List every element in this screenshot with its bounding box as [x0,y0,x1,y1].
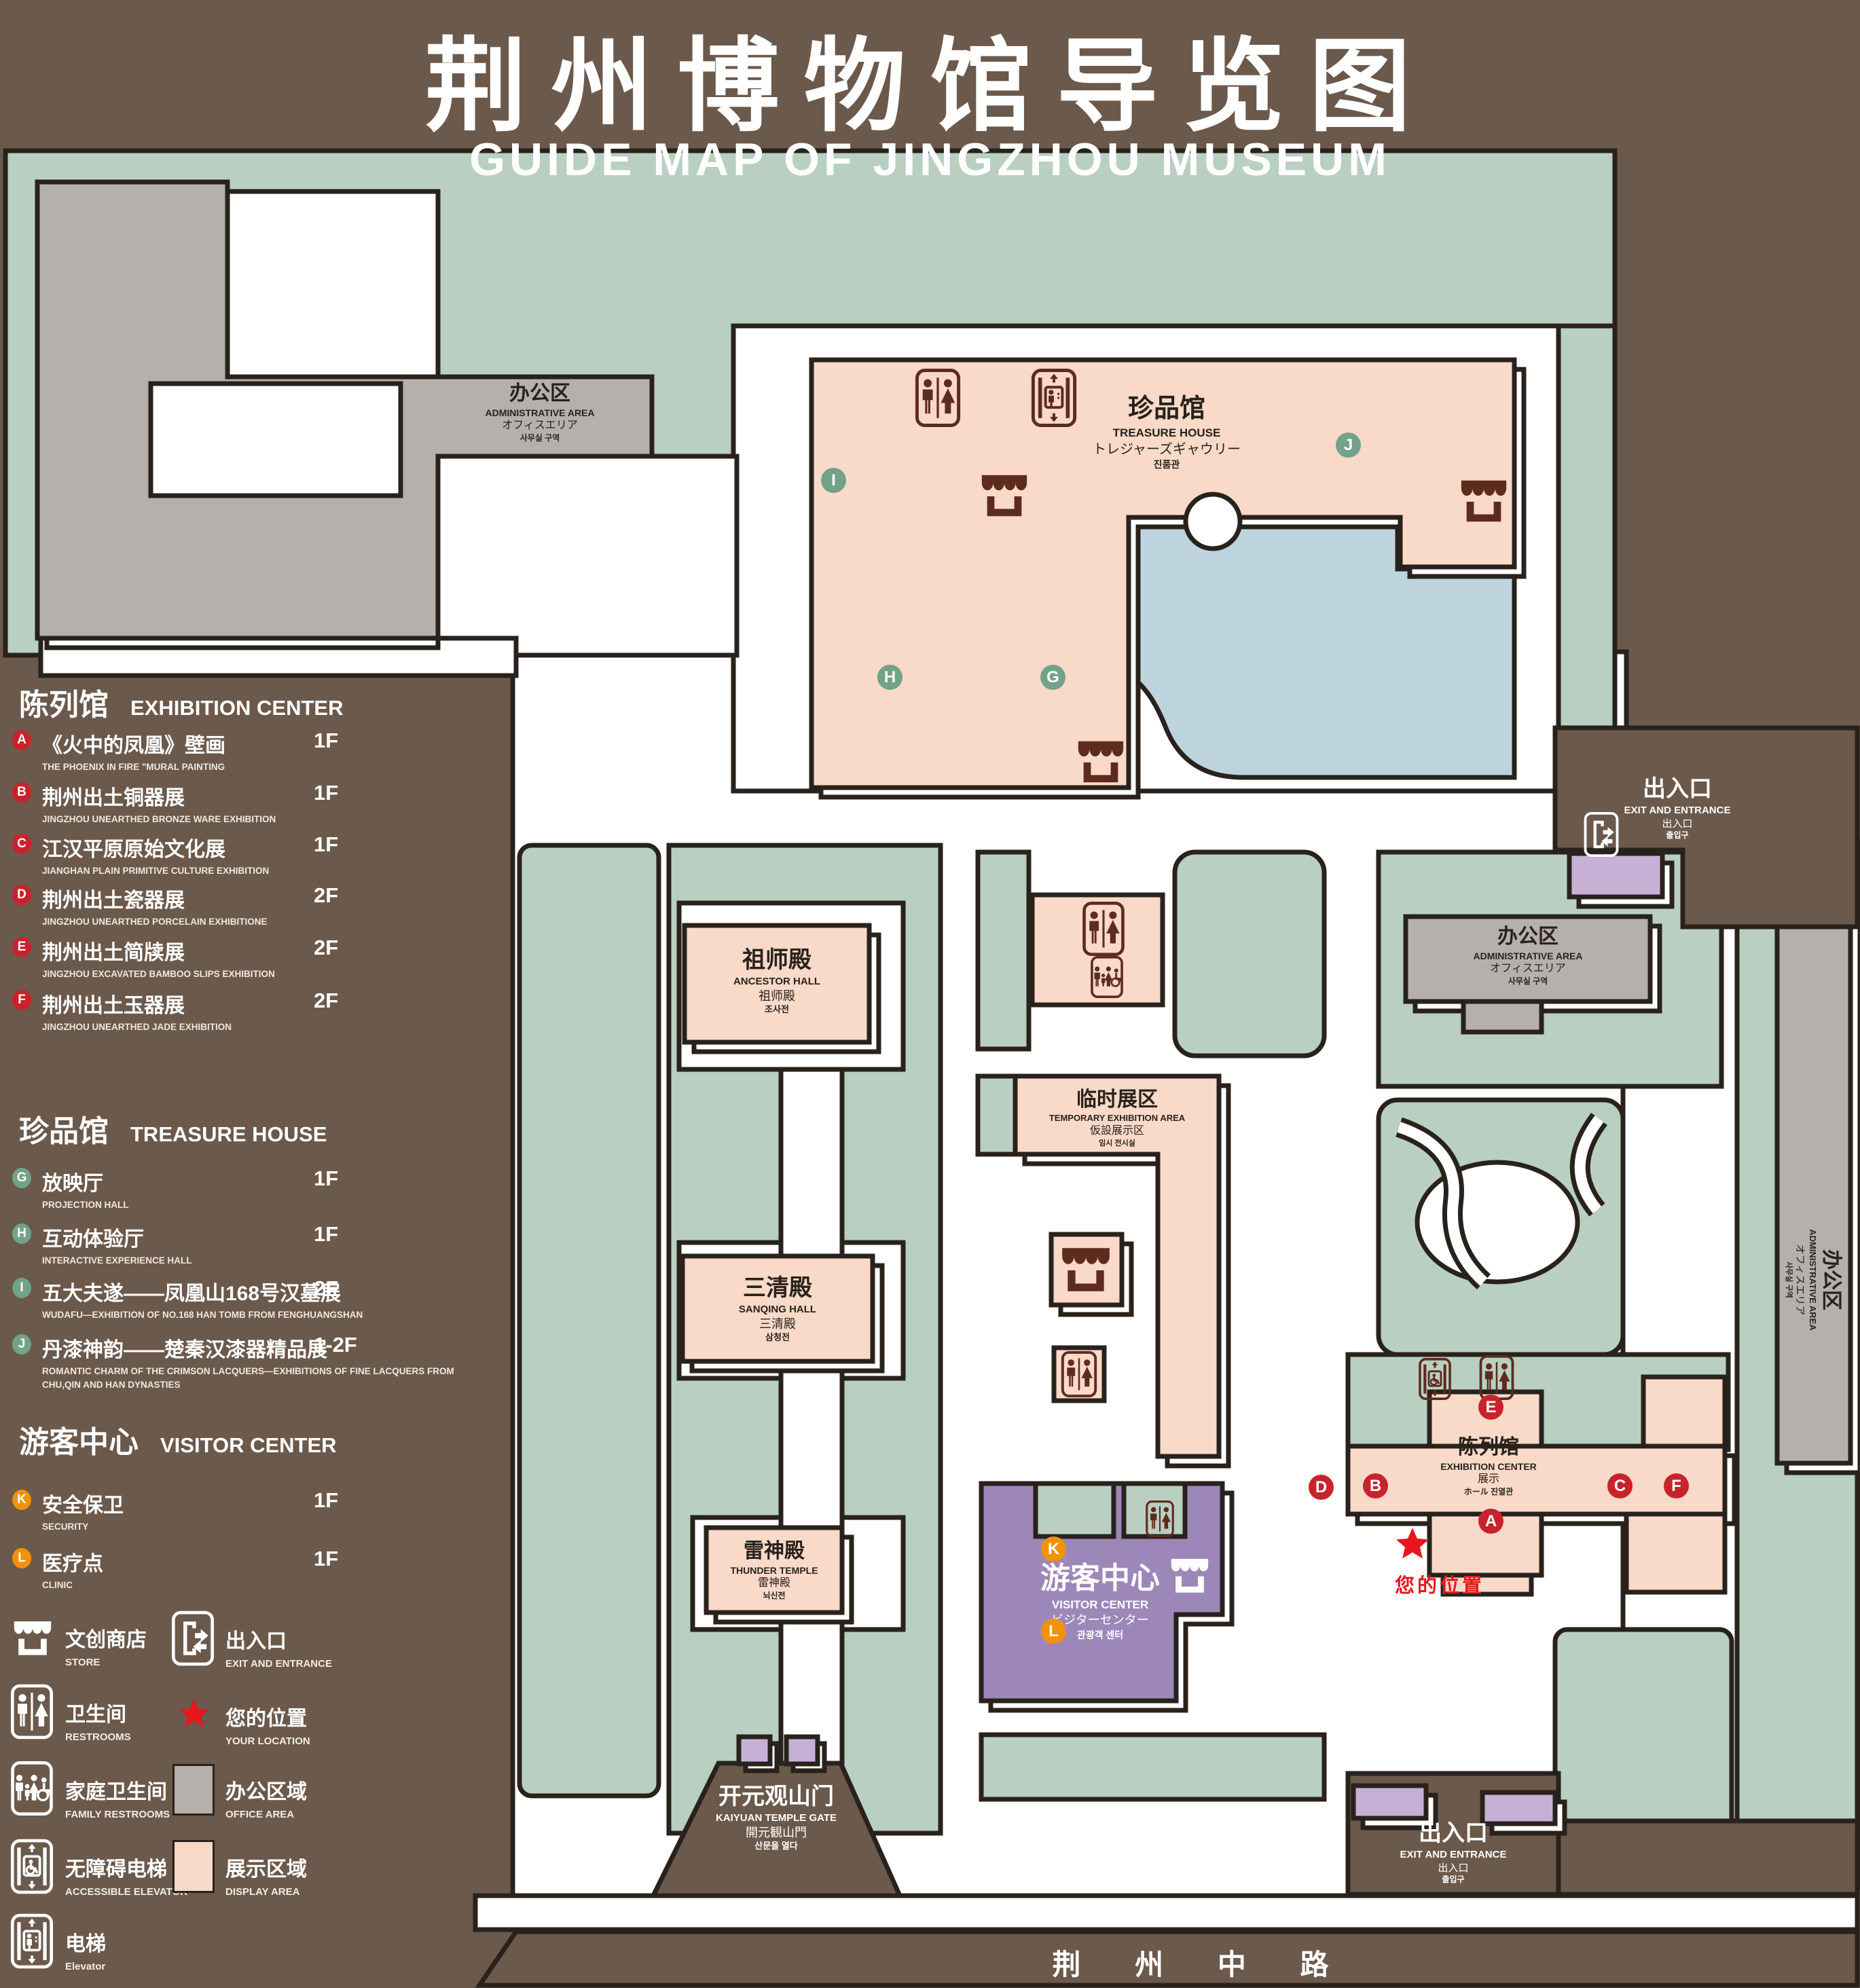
admin-ko: 사무실 구역 [1783,1229,1793,1331]
lawn-central-a [978,852,1029,1049]
exit-en: EXIT AND ENTRANCE [1624,804,1731,817]
section-title-en: EXHIBITION CENTER [130,696,343,720]
legend-item-E: E 荆州出土简牍展 2F JINGZHOU EXCAVATED BAMBOO S… [12,936,481,981]
road-name-label: 荆 州 中 路 [1052,1942,1351,1983]
item-zh: 荆州出土瓷器展 [42,883,481,913]
store-icon [11,1615,54,1661]
symbol-en: STORE [65,1657,147,1668]
garden-pond [1417,1162,1578,1282]
accessible-elevator-icon [1415,1358,1455,1400]
sanqing-hall-label: 三清殿 SANQING HALL 三清殿 삼청전 [739,1273,816,1344]
restrooms-icon [1057,1351,1101,1397]
map-marker-K: K [1041,1536,1066,1562]
symbol-zh: 展示区域 [225,1852,307,1882]
store-icon [1058,1241,1114,1297]
admin-topleft-label: 办公区 ADMINISTRATIVE AREA オフィスエリア 사무실 구역 [486,380,595,444]
item-floor: 1F [314,729,338,753]
guide-map-poster: { "title": {"zh": "荆州博物馆导览图", "en": "GUI… [0,0,1860,1988]
treasure-zh: 珍品馆 [1093,392,1241,426]
thunder-en: THUNDER TEMPLE [730,1564,818,1577]
legend-item-F: F 荆州出土玉器展 2F JINGZHOU UNEARTHED JADE EXH… [12,989,481,1034]
gate-platform-a [739,1737,770,1764]
legend-item-I: I 五大夫遂——凤凰山168号汉墓展 2F WUDAFU—EXHIBITION … [12,1276,481,1322]
symbol-zh: 电梯 [65,1927,106,1957]
exit-ne-label: 出入口 EXIT AND ENTRANCE 出入口 출입구 [1624,774,1731,841]
restrooms-icon [910,369,966,427]
symbol-en: OFFICE AREA [225,1809,307,1820]
legend-badge-F: F [12,990,31,1010]
exit-zh: 出入口 [1400,1818,1507,1848]
exit-ja: 出入口 [1400,1862,1507,1875]
symbol-zh: 您的位置 [225,1701,310,1731]
legend-badge-I: I [12,1278,31,1298]
sanqing-ja: 三清殿 [739,1317,816,1332]
item-zh: 《火中的凤凰》壁画 [42,729,481,758]
legend-badge-A: A [12,730,31,750]
exhibition-center-label: 陈列馆 EXHIBITION CENTER 展示 ホール 진열관 [1440,1434,1537,1498]
gate-zh: 开元观山门 [716,1782,837,1811]
admin-building-east-strip [1777,849,1850,1463]
sanqing-en: SANQING HALL [739,1303,816,1317]
legend-badge-H: H [12,1223,31,1244]
item-zh: 医疗点 [42,1547,481,1577]
item-floor: 1F [314,832,338,857]
map-marker-F: F [1664,1473,1689,1498]
family-restroom-icon [1085,956,1129,998]
ancestor-hall-label: 祖师殿 ANCESTOR HALL 祖师殿 조사전 [733,945,820,1016]
item-floor: 1F [314,781,338,805]
restrooms-icon [1142,1501,1178,1537]
symbol-zh: 无障碍电梯 [65,1852,187,1882]
admin-strip-label: 办公区 ADMINISTRATIVE AREA オフィスエリア 사무실 구역 [1783,1229,1844,1331]
admin-ko: 사무실 구역 [1474,976,1583,987]
temporary-en: TEMPORARY EXHIBITION AREA [1049,1113,1185,1124]
symbol-zh: 家庭卫生间 [65,1775,170,1805]
treasure-ja: トレジャーズギャウリー [1093,441,1241,458]
map-marker-E: E [1478,1395,1503,1420]
thunder-zh: 雷神殿 [730,1538,818,1564]
item-floor: 1F [314,1547,338,1571]
map-marker-I: I [821,468,846,493]
treasure-house-label: 珍品馆 TREASURE HOUSE トレジャーズギャウリー 진품관 [1093,392,1241,471]
symbol-zh: 出入口 [225,1624,332,1654]
temporary-exhibition-label: 临时展区 TEMPORARY EXHIBITION AREA 仮設展示区 임시 … [1049,1086,1185,1148]
exit-ja: 出入口 [1624,817,1731,831]
sidewalk [475,1896,1857,1930]
item-en: JINGZHOU UNEARTHED PORCELAIN EXHIBITIONE [42,915,463,929]
item-floor: 2F [314,1276,338,1301]
symbol-en: YOUR LOCATION [225,1735,310,1747]
item-en: JINGZHOU UNEARTHED BRONZE WARE EXHIBITIO… [42,813,463,826]
legend-badge-B: B [12,782,31,803]
store-icon [978,468,1031,521]
treasure-en: TREASURE HOUSE [1093,426,1241,441]
symbol-zh: 办公区域 [225,1775,307,1805]
exit-entrance-icon [172,1610,214,1666]
item-floor: 1F [314,1166,338,1191]
thunder-temple-label: 雷神殿 THUNDER TEMPLE 雷神殿 뇌신전 [730,1538,818,1602]
admin-en: ADMINISTRATIVE AREA [1806,1229,1818,1331]
admin-east-label: 办公区 ADMINISTRATIVE AREA オフィスエリア 사무실 구역 [1474,923,1583,987]
exit-en: EXIT AND ENTRANCE [1400,1848,1507,1862]
exhibition-en: EXHIBITION CENTER [1440,1460,1537,1473]
map-marker-G: G [1040,665,1065,690]
item-zh: 荆州出土铜器展 [42,781,481,811]
symbol-en: ACCESSIBLE ELEVATOR [65,1886,187,1898]
your-location-star-icon [1396,1528,1429,1559]
temporary-zh: 临时展区 [1049,1086,1185,1113]
visitor-zh: 游客中心 [1040,1559,1160,1598]
item-en: INTERACTIVE EXPERIENCE HALL [42,1254,463,1268]
gate-ko: 산문을 열다 [716,1841,837,1852]
exit-zh: 出入口 [1624,774,1731,804]
admin-zh: 办公区 [1818,1229,1844,1331]
legend-symbol-store: 文创商店 STORE [65,1623,147,1668]
thunder-ja: 雷神殿 [730,1577,818,1591]
exit-ko: 출입구 [1400,1875,1507,1885]
item-en: PROJECTION HALL [42,1198,463,1212]
display-area-swatch [172,1840,215,1893]
ancestor-zh: 祖师殿 [733,945,820,975]
item-zh: 荆州出土玉器展 [42,989,481,1018]
legend-item-H: H 互动体验厅 1F INTERACTIVE EXPERIENCE HALL [12,1222,481,1268]
map-marker-L: L [1041,1619,1066,1644]
symbol-en: EXIT AND ENTRANCE [225,1658,332,1670]
admin-ko: 사무실 구역 [486,433,595,444]
legend-symbol-display-area: 展示区域 DISPLAY AREA [225,1852,307,1898]
gate-ja: 開元観山門 [716,1825,837,1841]
legend-item-C: C 江汉平原原始文化展 1F JIANGHAN PLAIN PRIMITIVE … [12,832,481,878]
item-floor: 1-2F [314,1333,357,1357]
legend-symbol-exit: 出入口 EXIT AND ENTRANCE [225,1624,332,1670]
section-title-zh: 陈列馆 [19,680,109,724]
legend-section-exhibition-center: 陈列馆 EXHIBITION CENTER [19,680,343,724]
admin-ja: オフィスエリア [486,419,595,433]
ancestor-ko: 조사전 [733,1004,820,1016]
exit-south-label: 出入口 EXIT AND ENTRANCE 出入口 출입구 [1400,1818,1507,1885]
item-floor: 1F [314,1222,338,1247]
elevator-icon [1027,369,1081,427]
exit-platform-ne [1569,853,1662,897]
item-floor: 1F [314,1488,338,1513]
legend-item-A: A 《火中的凤凰》壁画 1F THE PHOENIX IN FIRE "MURA… [12,729,481,774]
map-marker-J: J [1336,432,1361,458]
item-en: JIANGHAN PLAIN PRIMITIVE CULTURE EXHIBIT… [42,864,463,878]
item-floor: 2F [314,936,338,960]
exhibition-ko: ホール 진열관 [1440,1487,1537,1498]
legend-item-D: D 荆州出土瓷器展 2F JINGZHOU UNEARTHED PORCELAI… [12,883,481,929]
legend-symbol-family-restrooms: 家庭卫生间 FAMILY RESTROOMS [65,1775,170,1820]
section-title-zh: 珍品馆 [19,1107,109,1150]
kaiyuan-gate-label: 开元观山门 KAIYUAN TEMPLE GATE 開元観山門 산문을 열다 [716,1782,837,1852]
item-floor: 2F [314,883,338,908]
legend-item-J: J 丹漆神韵——楚秦汉漆器精品展 1-2F ROMANTIC CHARM OF … [12,1333,481,1393]
legend-badge-K: K [12,1490,31,1510]
legend-item-K: K 安全保卫 1F SECURITY [12,1488,481,1534]
map-marker-A: A [1478,1509,1503,1534]
family-restrooms-icon [11,1761,53,1816]
item-en: THE PHOENIX IN FIRE "MURAL PAINTING [42,760,463,774]
legend-badge-D: D [12,885,31,905]
lawn-visitor-notch-a [1036,1484,1114,1536]
item-zh: 五大夫遂——凤凰山168号汉墓展 [42,1276,481,1306]
legend-symbol-office-area: 办公区域 OFFICE AREA [225,1775,307,1820]
item-en: WUDAFU—EXHIBITION OF NO.168 HAN TOMB FRO… [42,1308,463,1322]
map-marker-B: B [1363,1473,1388,1498]
admin-zh: 办公区 [486,380,595,407]
path-temple-axis [781,1069,842,1833]
legend-badge-L: L [12,1548,31,1568]
symbol-en: RESTROOMS [65,1731,131,1743]
item-zh: 安全保卫 [42,1488,481,1518]
map-marker-H: H [877,665,902,690]
admin-en: ADMINISTRATIVE AREA [1474,950,1583,962]
temporary-ja: 仮設展示区 [1049,1124,1185,1139]
legend-badge-C: C [12,834,31,854]
legend-symbol-elevator: 电梯 Elevator [65,1927,106,1972]
section-title-zh: 游客中心 [19,1418,139,1461]
item-zh: 江汉平原原始文化展 [42,832,481,862]
exhibition-center-ne [1643,1377,1725,1446]
your-location-star-icon [179,1699,209,1727]
legend-symbol-accessible-elevator: 无障碍电梯 ACCESSIBLE ELEVATOR [65,1852,187,1898]
legend-item-L: L 医疗点 1F CLINIC [12,1547,481,1592]
legend-section-treasure-house: 珍品馆 TREASURE HOUSE [19,1107,327,1150]
exit-platform-s-a [1353,1786,1426,1818]
office-area-swatch [172,1764,215,1816]
page-title: 荆州博物馆导览图 [424,4,1435,151]
thunder-ko: 뇌신전 [730,1591,818,1602]
legend-badge-G: G [12,1168,31,1188]
gate-en: KAIYUAN TEMPLE GATE [716,1811,837,1825]
map-marker-D: D [1309,1475,1334,1500]
item-zh: 互动体验厅 [42,1222,481,1252]
restrooms-icon [11,1684,53,1739]
exit-corridor-s-east [1558,1821,1857,1894]
legend-item-B: B 荆州出土铜器展 1F JINGZHOU UNEARTHED BRONZE W… [12,781,481,826]
legend-symbol-restrooms: 卫生间 RESTROOMS [65,1697,131,1743]
item-en: JINGZHOU UNEARTHED JADE EXHIBITION [42,1020,463,1034]
treasure-arch [1186,494,1240,549]
exit-entrance-icon [1580,812,1623,857]
item-zh: 丹漆神韵——楚秦汉漆器精品展 [42,1333,481,1363]
item-en: JINGZHOU EXCAVATED BAMBOO SLIPS EXHIBITI… [42,968,463,981]
exit-ko: 출입구 [1624,830,1731,841]
admin-east-wing [1463,1001,1542,1032]
treasure-ko: 진품관 [1093,458,1241,471]
legend-symbol-your-location: 您的位置 YOUR LOCATION [225,1701,310,1747]
visitor-en: VISITOR CENTER [1040,1598,1160,1613]
item-en: CLINIC [42,1579,463,1592]
item-floor: 2F [314,989,338,1013]
item-en: SECURITY [42,1520,463,1534]
symbol-zh: 卫生间 [65,1697,131,1727]
symbol-en: FAMILY RESTROOMS [65,1809,170,1820]
exhibition-center-se [1626,1514,1725,1592]
restrooms-icon [1077,902,1130,956]
admin-en: ADMINISTRATIVE AREA [486,407,595,419]
your-location-label: 您的位置 [1395,1570,1484,1598]
ancestor-en: ANCESTOR HALL [733,975,820,989]
sanqing-ko: 삼청전 [739,1332,816,1344]
restrooms-icon [1470,1355,1524,1400]
section-title-en: TREASURE HOUSE [130,1122,327,1147]
accessible-elevator-icon [11,1839,53,1894]
legend-item-G: G 放映厅 1F PROJECTION HALL [12,1166,481,1212]
ancestor-ja: 祖师殿 [733,989,820,1004]
legend-section-visitor-center: 游客中心 VISITOR CENTER [19,1418,337,1461]
admin-zh: 办公区 [1474,923,1583,950]
lawn-central-b [1175,852,1324,1056]
page-subtitle: GUIDE MAP OF JINGZHOU MUSEUM [469,133,1391,186]
symbol-en: Elevator [65,1961,106,1972]
store-icon [1074,735,1127,788]
elevator-icon [11,1913,53,1969]
lawn-west-strip [519,845,659,1796]
symbol-zh: 文创商店 [65,1623,147,1653]
admin-inner-courtyard [151,384,401,496]
lawn-central-c [978,1076,1015,1154]
admin-ja: オフィスエリア [1793,1229,1806,1331]
courtyard-admin-east [438,456,737,655]
lawn-topright-strip [1558,326,1615,782]
legend-badge-E: E [12,937,31,957]
legend-badge-J: J [12,1334,31,1355]
exhibition-ja: 展示 [1440,1473,1537,1487]
item-zh: 放映厅 [42,1166,481,1196]
admin-ja: オフィスエリア [1474,962,1583,976]
item-en: ROMANTIC CHARM OF THE CRIMSON LACQUERS—E… [42,1365,463,1393]
store-icon [1168,1553,1211,1597]
temporary-ko: 임시 전시실 [1049,1139,1185,1148]
exhibition-zh: 陈列馆 [1440,1434,1537,1460]
store-icon [1457,474,1510,527]
symbol-en: DISPLAY AREA [225,1886,307,1898]
gate-platform-b [786,1737,818,1764]
map-marker-C: C [1607,1473,1633,1498]
item-zh: 荆州出土简牍展 [42,936,481,965]
sanqing-zh: 三清殿 [739,1273,816,1303]
section-title-en: VISITOR CENTER [160,1433,337,1458]
lawn-central-d [981,1735,1324,1799]
